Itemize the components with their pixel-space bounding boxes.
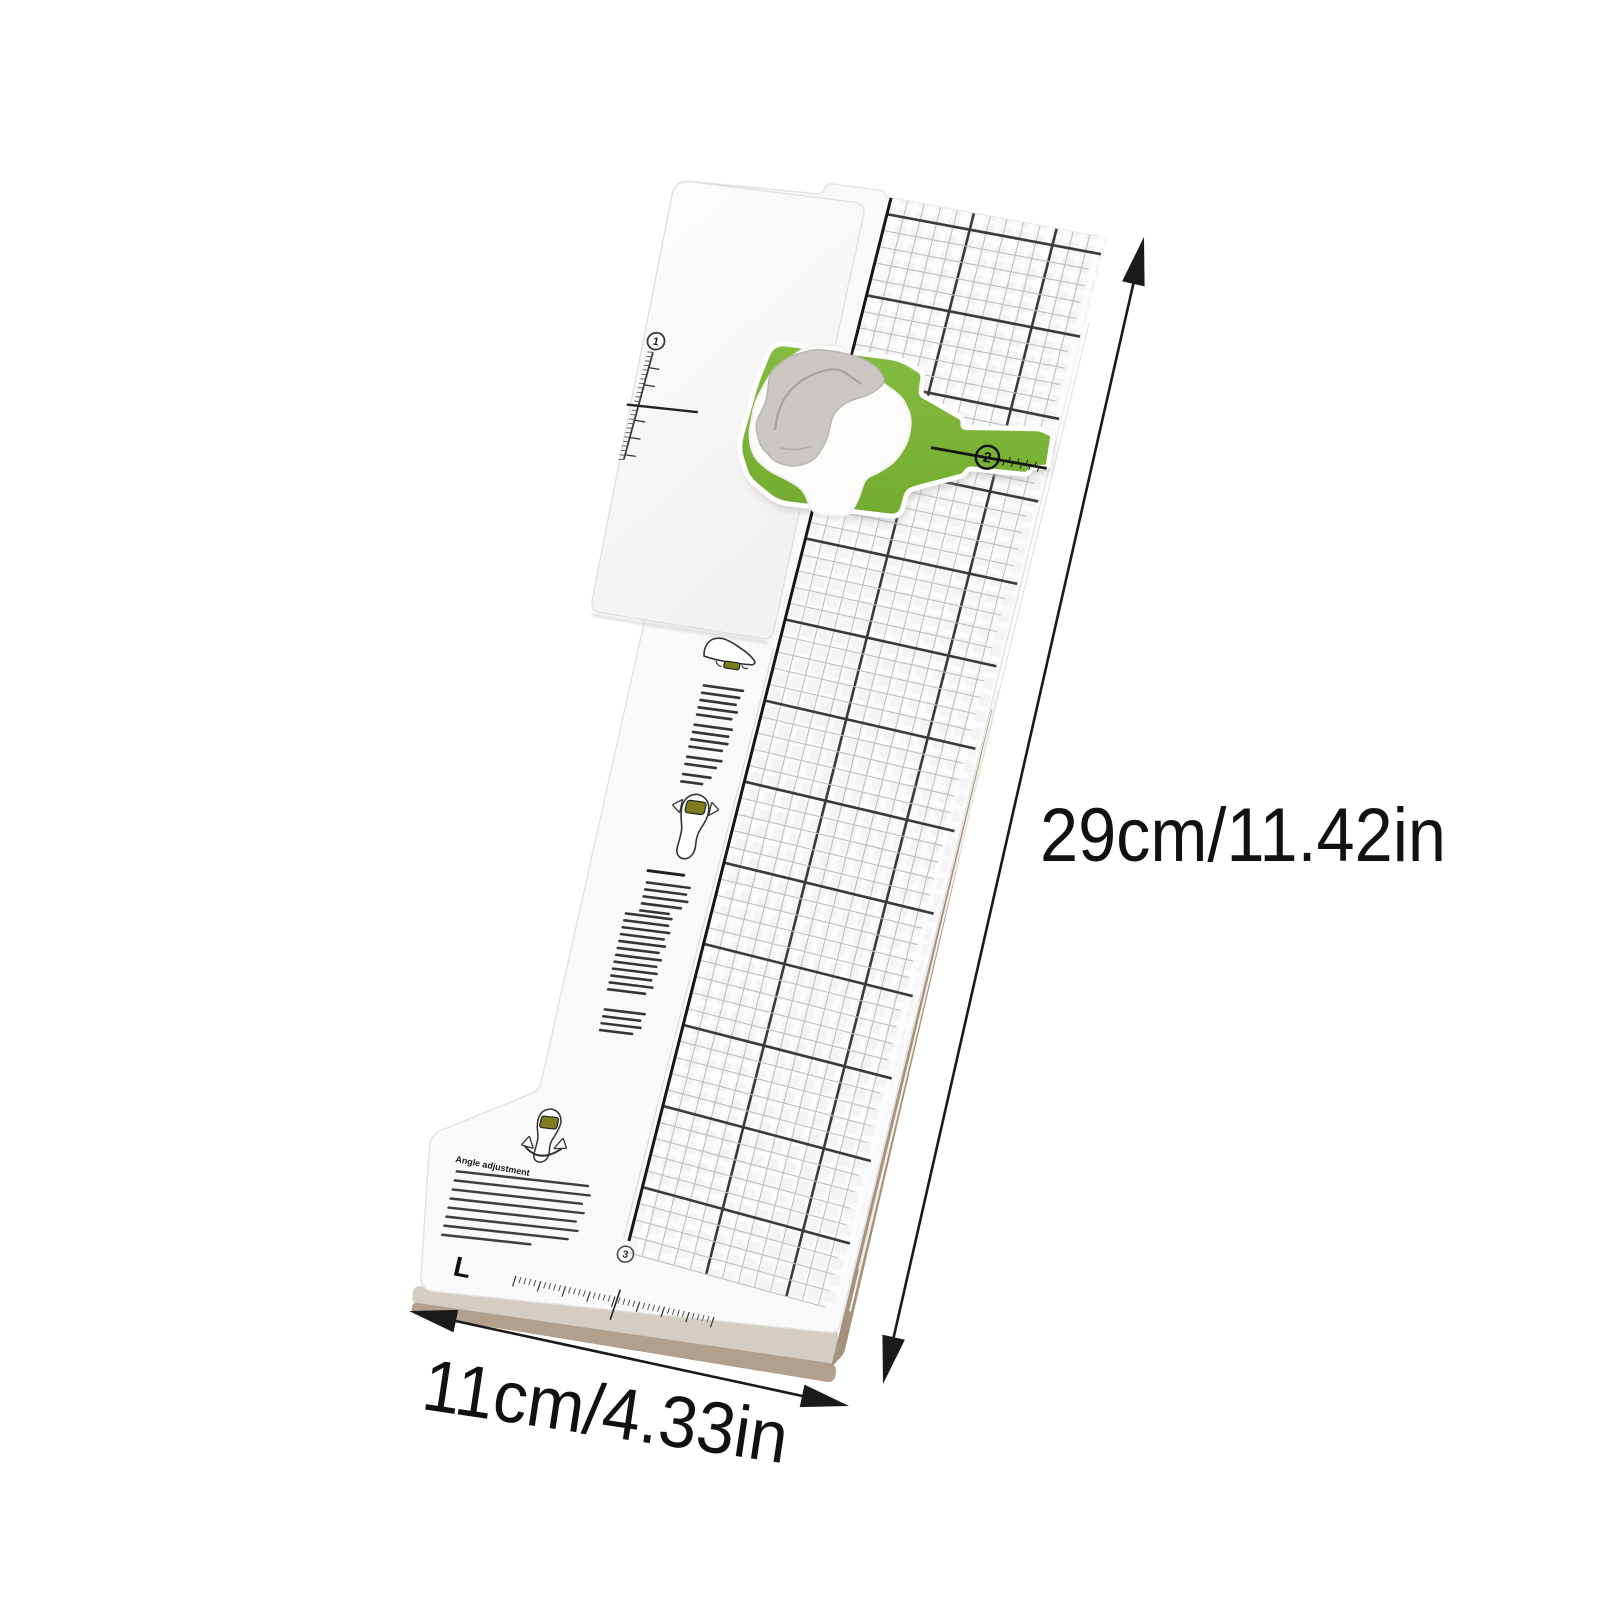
svg-text:29cm/11.42in: 29cm/11.42in	[1040, 793, 1446, 878]
